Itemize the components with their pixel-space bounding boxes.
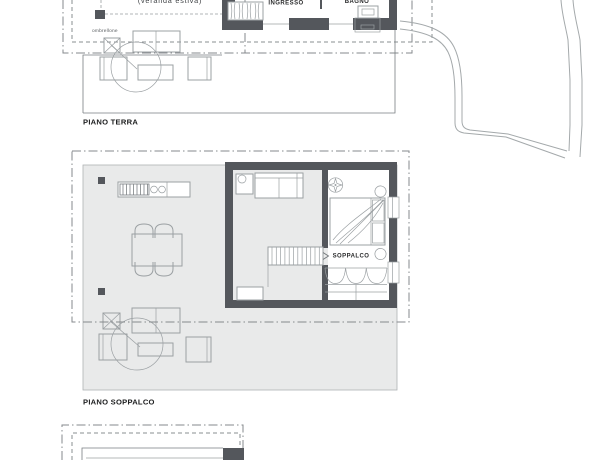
interior-wall [322, 170, 328, 300]
sink [358, 6, 378, 18]
armchair [236, 174, 253, 194]
label-ingresso: INGRESSO [268, 1, 303, 7]
plan-piano-soppalco: SOPPALCO PIANO SOPPALCO [72, 151, 409, 407]
terrace-furniture-terra [100, 31, 211, 92]
pergola-post [95, 10, 105, 19]
side-table [138, 65, 173, 80]
plan-title-soppalco: PIANO SOPPALCO [83, 398, 155, 407]
plan-piano-terra: (veranda estiva) INGRESSO BAGNO ombrello… [63, 0, 432, 127]
label-bagno: BAGNO [345, 0, 370, 5]
chair-left [100, 57, 127, 80]
bed [330, 198, 385, 245]
plan-title-terra: PIANO TERRA [83, 118, 138, 127]
chair-right [188, 57, 211, 80]
label-veranda: (veranda estiva) [138, 0, 202, 5]
label-ombrellone: ombrellone [92, 28, 118, 34]
sofa [255, 173, 303, 198]
site-path-lines [400, 0, 582, 158]
building-wall-corner [223, 448, 244, 460]
floorplan-sheet: (veranda estiva) INGRESSO BAGNO ombrello… [0, 0, 600, 460]
plan-bottom-cut [62, 425, 244, 460]
kitchen-counter [118, 182, 190, 197]
label-soppalco: SOPPALCO [333, 254, 370, 260]
wardrobe [228, 2, 263, 20]
cabinet [237, 287, 263, 300]
